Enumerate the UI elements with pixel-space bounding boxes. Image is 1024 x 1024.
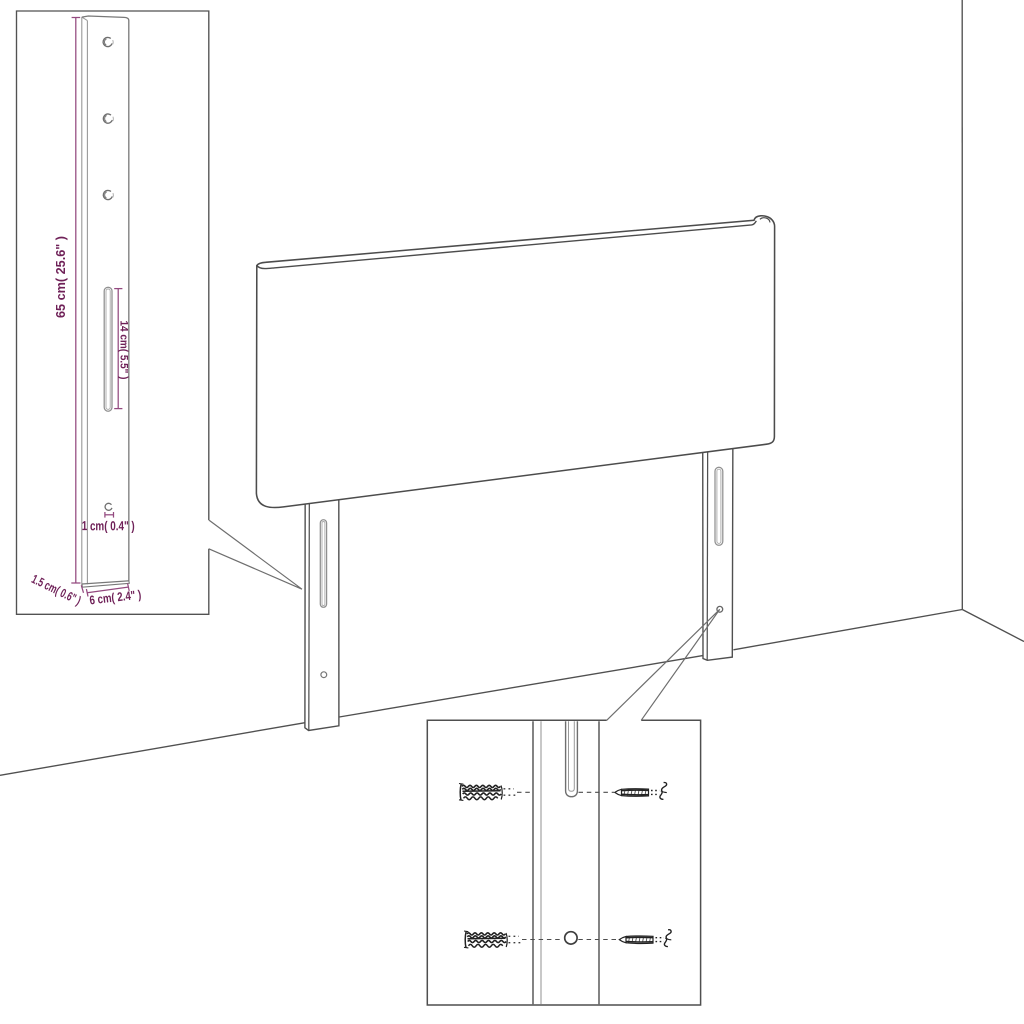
svg-text:14 cm( 5.5" ): 14 cm( 5.5" ) (118, 321, 130, 380)
svg-text:1 cm( 0.4" ): 1 cm( 0.4" ) (82, 518, 135, 533)
svg-text:65 cm( 25.6" ): 65 cm( 25.6" ) (53, 236, 68, 318)
